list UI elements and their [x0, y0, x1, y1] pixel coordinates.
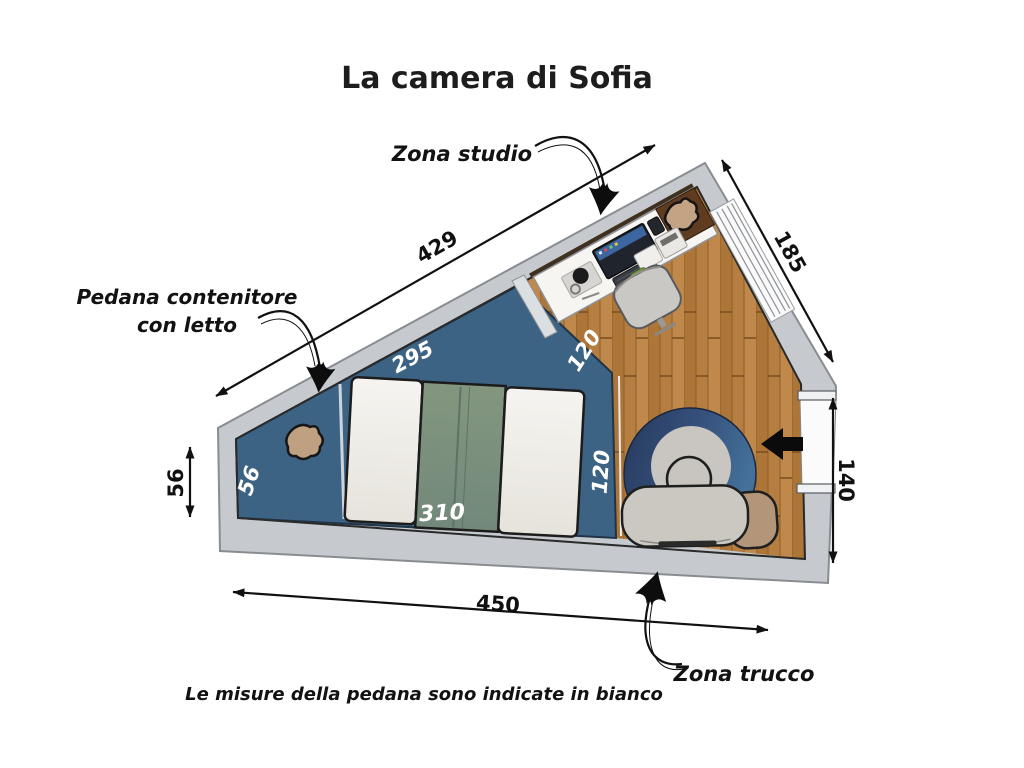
- zone-studio-label: Zona studio: [391, 142, 532, 166]
- platform-pouf: [286, 425, 322, 459]
- dim-label-56: 56: [164, 468, 188, 497]
- dim-label-450: 450: [475, 591, 520, 618]
- vanity-chair: [621, 485, 748, 547]
- page-title: La camera di Sofia: [341, 61, 653, 96]
- zone-pedana-label-line1: Pedana contenitore: [77, 285, 298, 309]
- floor-plan-canvas: 295 120 56 120 310 429 185 140 56 450 Zo…: [0, 0, 1024, 768]
- platform-measure-120-right: 120: [588, 449, 615, 494]
- zone-trucco-label: Zona trucco: [673, 662, 815, 686]
- footnote: Le misure della pedana sono indicate in …: [185, 684, 663, 705]
- dim-label-140: 140: [834, 458, 858, 502]
- bed-mattress-left: [344, 377, 422, 525]
- platform-measure-310: 310: [418, 500, 465, 527]
- floor-plan-page: 295 120 56 120 310 429 185 140 56 450 Zo…: [0, 0, 1024, 768]
- zone-pedana-label-line2: con letto: [137, 313, 237, 337]
- bed-mattress-right: [498, 387, 585, 537]
